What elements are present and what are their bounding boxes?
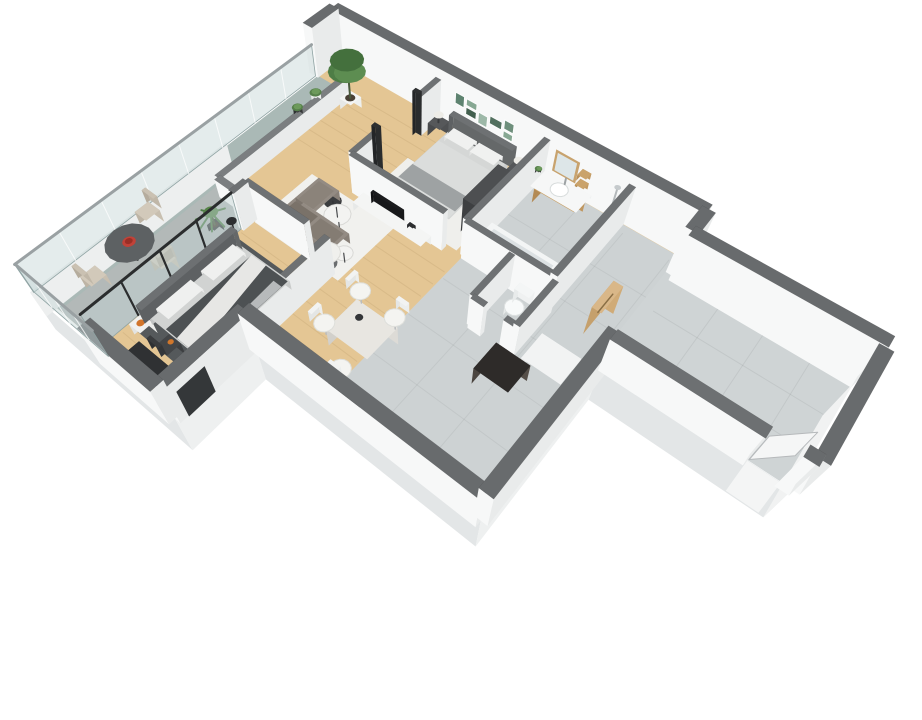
doorframe-master-a-face <box>416 88 422 136</box>
faucet <box>565 179 566 184</box>
sink-basin <box>550 183 568 197</box>
stool-2-seat <box>384 309 405 327</box>
floor-plan-page <box>0 0 922 720</box>
toilet-seat <box>505 299 525 316</box>
doorframe-master-a-face <box>412 88 415 135</box>
stool-3-seat <box>314 314 335 332</box>
stool-1-seat <box>350 283 371 300</box>
floor-plan-3d-render <box>0 0 922 720</box>
